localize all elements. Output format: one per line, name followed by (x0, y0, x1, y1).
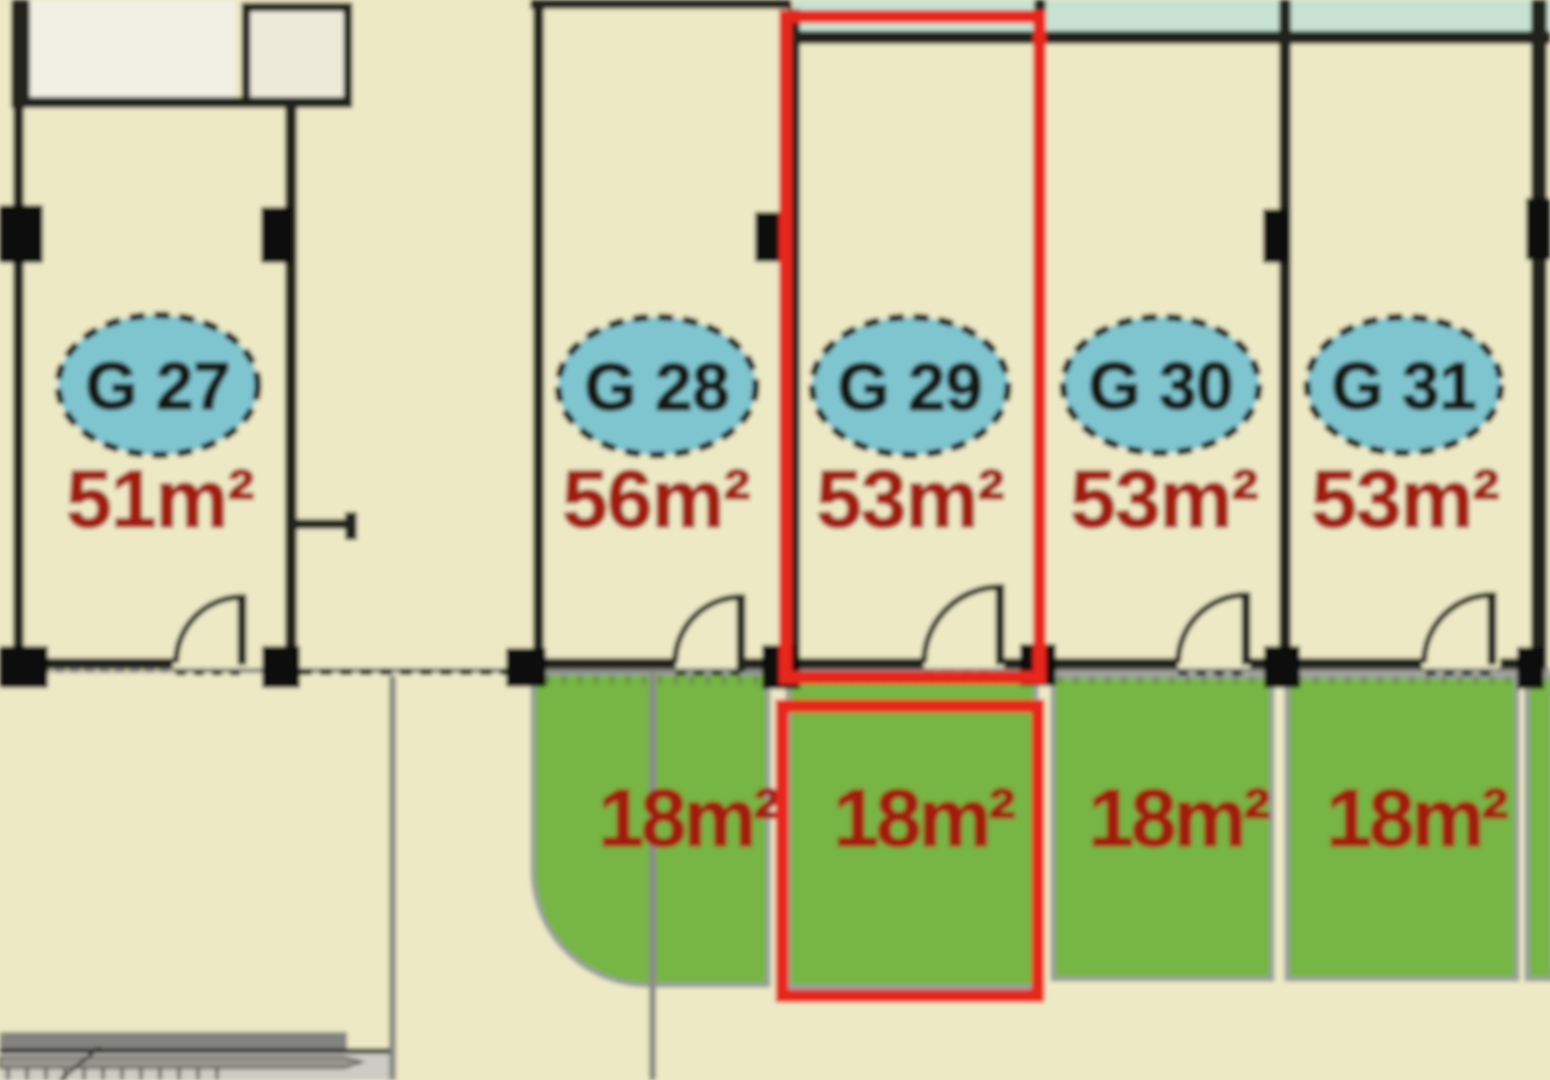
svg-text:G 31: G 31 (1331, 349, 1476, 424)
svg-text:53m²: 53m² (1070, 454, 1257, 545)
svg-text:G 29: G 29 (837, 350, 982, 425)
svg-text:18m²: 18m² (1088, 773, 1269, 864)
svg-text:53m²: 53m² (1311, 454, 1498, 545)
svg-text:G 30: G 30 (1088, 349, 1233, 424)
svg-text:18m²: 18m² (1326, 773, 1507, 864)
svg-text:56m²: 56m² (562, 454, 749, 545)
svg-text:G 28: G 28 (584, 350, 729, 425)
svg-text:18m²: 18m² (598, 773, 779, 864)
svg-text:51m²: 51m² (66, 454, 253, 545)
svg-text:G 27: G 27 (85, 349, 230, 424)
svg-text:18m²: 18m² (833, 773, 1014, 864)
svg-text:53m²: 53m² (816, 454, 1003, 545)
